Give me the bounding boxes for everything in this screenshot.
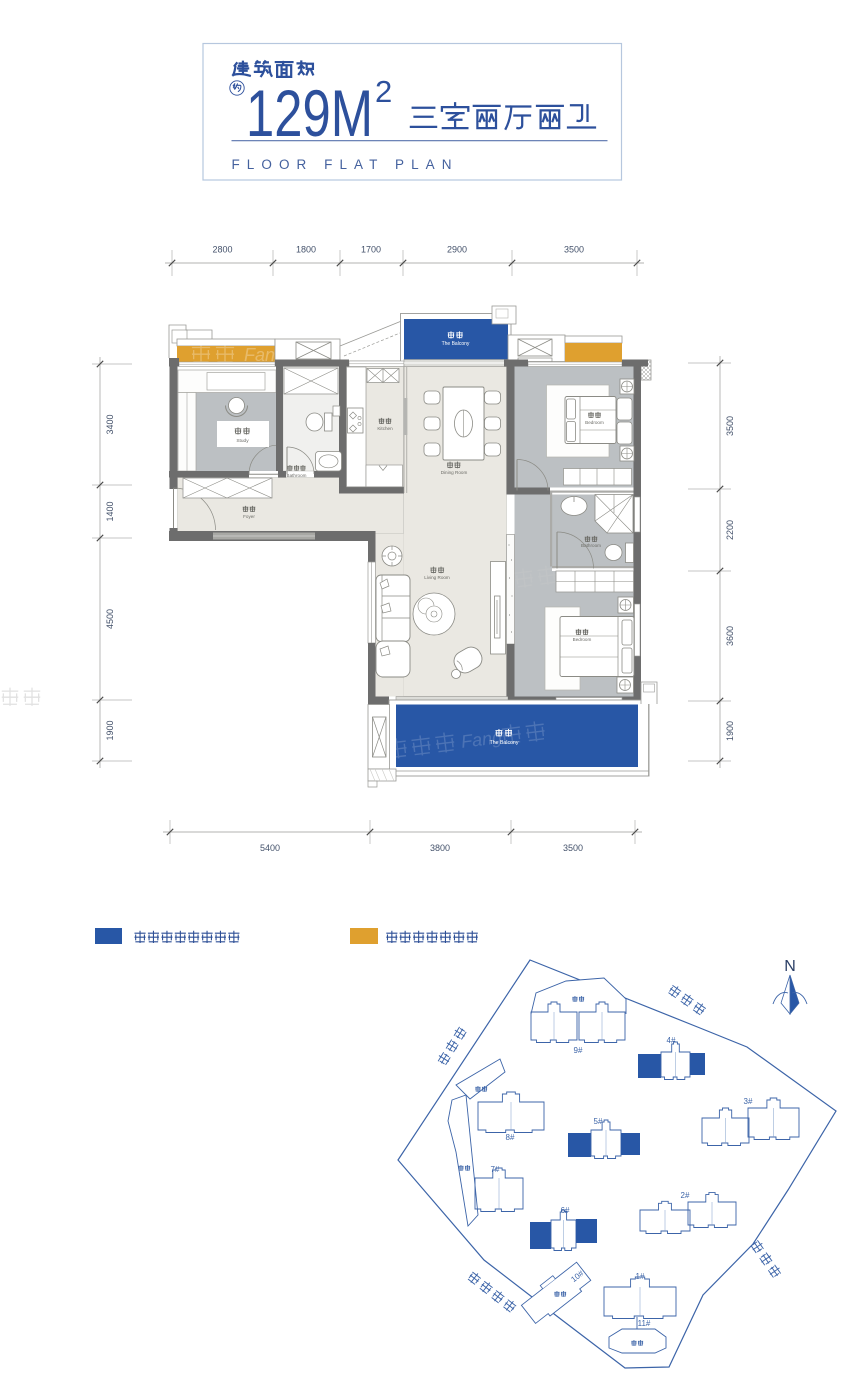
svg-text:6#: 6# <box>561 1206 570 1215</box>
svg-text:1400: 1400 <box>105 501 115 521</box>
svg-text:1700: 1700 <box>361 245 381 255</box>
svg-text:2900: 2900 <box>447 245 467 255</box>
svg-text:1800: 1800 <box>296 245 316 255</box>
svg-text:Bathroom: Bathroom <box>287 473 307 478</box>
svg-text:3400: 3400 <box>105 414 115 434</box>
svg-text:3500: 3500 <box>564 245 584 255</box>
svg-text:3500: 3500 <box>563 843 583 853</box>
svg-text:11#: 11# <box>638 1319 651 1328</box>
svg-text:3800: 3800 <box>430 843 450 853</box>
svg-text:129M: 129M <box>246 76 373 150</box>
svg-text:9#: 9# <box>574 1046 583 1055</box>
svg-text:2800: 2800 <box>212 245 232 255</box>
svg-text:Kitchen: Kitchen <box>377 426 393 431</box>
svg-text:5400: 5400 <box>260 843 280 853</box>
svg-text:Bedroom: Bedroom <box>573 637 592 642</box>
svg-text:2: 2 <box>375 74 392 109</box>
svg-text:8#: 8# <box>506 1133 515 1142</box>
svg-text:Dining Room: Dining Room <box>441 470 468 475</box>
svg-text:Study: Study <box>236 438 249 444</box>
svg-text:1900: 1900 <box>725 721 735 741</box>
svg-text:Bedroom: Bedroom <box>585 420 604 425</box>
svg-text:2#: 2# <box>681 1191 690 1200</box>
svg-text:7#: 7# <box>491 1165 500 1174</box>
svg-text:FLOOR FLAT PLAN: FLOOR FLAT PLAN <box>232 157 452 172</box>
svg-text:N: N <box>784 958 796 975</box>
svg-text:4#: 4# <box>667 1036 676 1045</box>
svg-text:Living Room: Living Room <box>424 575 450 580</box>
svg-text:Bathroom: Bathroom <box>581 543 601 548</box>
svg-text:4500: 4500 <box>105 609 115 629</box>
svg-text:3#: 3# <box>744 1097 753 1106</box>
svg-text:1#: 1# <box>636 1272 645 1281</box>
svg-text:5#: 5# <box>594 1117 603 1126</box>
svg-text:The Balcony: The Balcony <box>442 341 470 347</box>
svg-text:2200: 2200 <box>725 520 735 540</box>
svg-text:1900: 1900 <box>105 720 115 740</box>
svg-text:3600: 3600 <box>725 626 735 646</box>
svg-text:3500: 3500 <box>725 416 735 436</box>
svg-text:Foyer: Foyer <box>243 514 255 519</box>
